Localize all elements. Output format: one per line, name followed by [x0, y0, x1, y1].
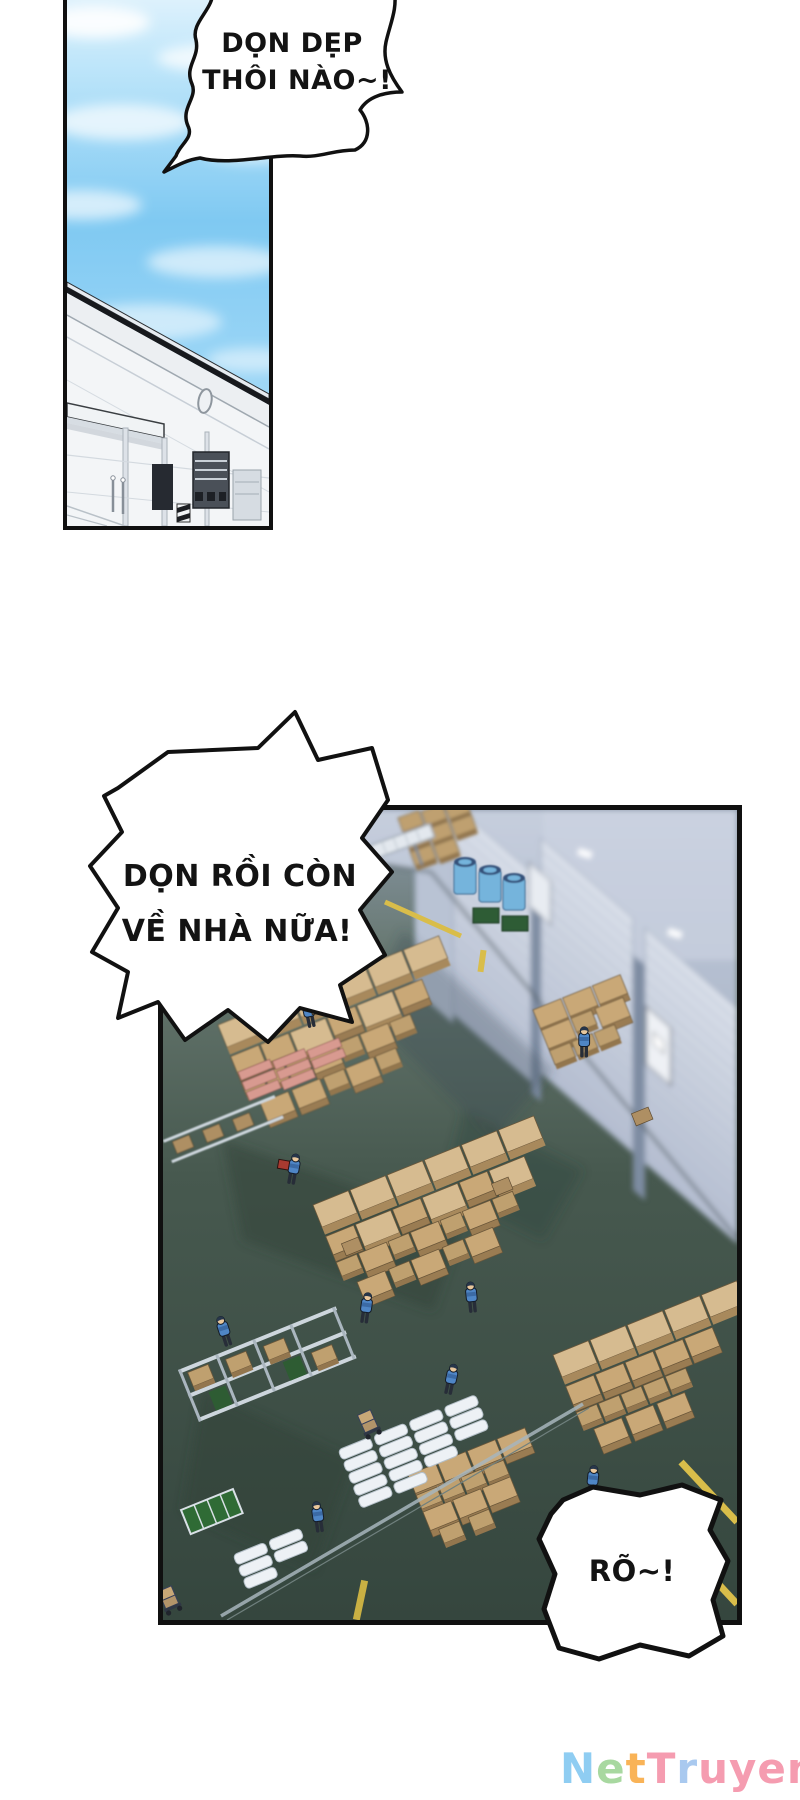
watermark-letter: r	[676, 1744, 698, 1793]
blue-barrel	[503, 873, 525, 910]
blue-barrel	[454, 857, 476, 894]
watermark-letter: n	[787, 1744, 800, 1793]
blue-barrel	[479, 865, 501, 902]
shout-bubble: DỌN RỒI CÒN VỀ NHÀ NỮA!	[80, 700, 400, 1060]
hazard-stripe-post	[177, 504, 190, 522]
bubble-shout-line1: DỌN RỒI CÒN	[123, 853, 357, 894]
bubble-reply-text: RÕ~!	[589, 1554, 676, 1588]
nettruyen-watermark: NetTruyen	[560, 1744, 800, 1793]
door-divider	[633, 955, 645, 1200]
reply-bubble: RÕ~!	[535, 1478, 740, 1673]
bubble-top-line1: DỌN DẸP	[221, 28, 363, 59]
speech-bubble-top: DỌN DẸP THÔI NÀO~!	[150, 0, 415, 185]
side-panel	[233, 470, 261, 520]
watermark-letter: t	[626, 1744, 647, 1793]
bubble-top-line2: THÔI NÀO~!	[202, 64, 392, 96]
bubble-shout-line2: VỀ NHÀ NỮA!	[122, 909, 353, 949]
watermark-letter: u	[698, 1744, 729, 1793]
dark-doorway	[152, 464, 173, 510]
post-knob	[111, 476, 115, 480]
loading-dock-panel	[193, 452, 229, 508]
comic-page: DỌN DẸP THÔI NÀO~! DỌN RỒI CÒN VỀ NHÀ NỮ…	[0, 0, 800, 1800]
post-knob	[121, 478, 125, 482]
watermark-letter: e	[757, 1744, 787, 1793]
watermark-letter: N	[560, 1744, 596, 1793]
watermark-letter: e	[596, 1744, 626, 1793]
green-bin	[502, 916, 528, 931]
watermark-letter: y	[729, 1744, 757, 1793]
green-bin	[473, 908, 499, 923]
watermark-letter: T	[647, 1744, 677, 1793]
